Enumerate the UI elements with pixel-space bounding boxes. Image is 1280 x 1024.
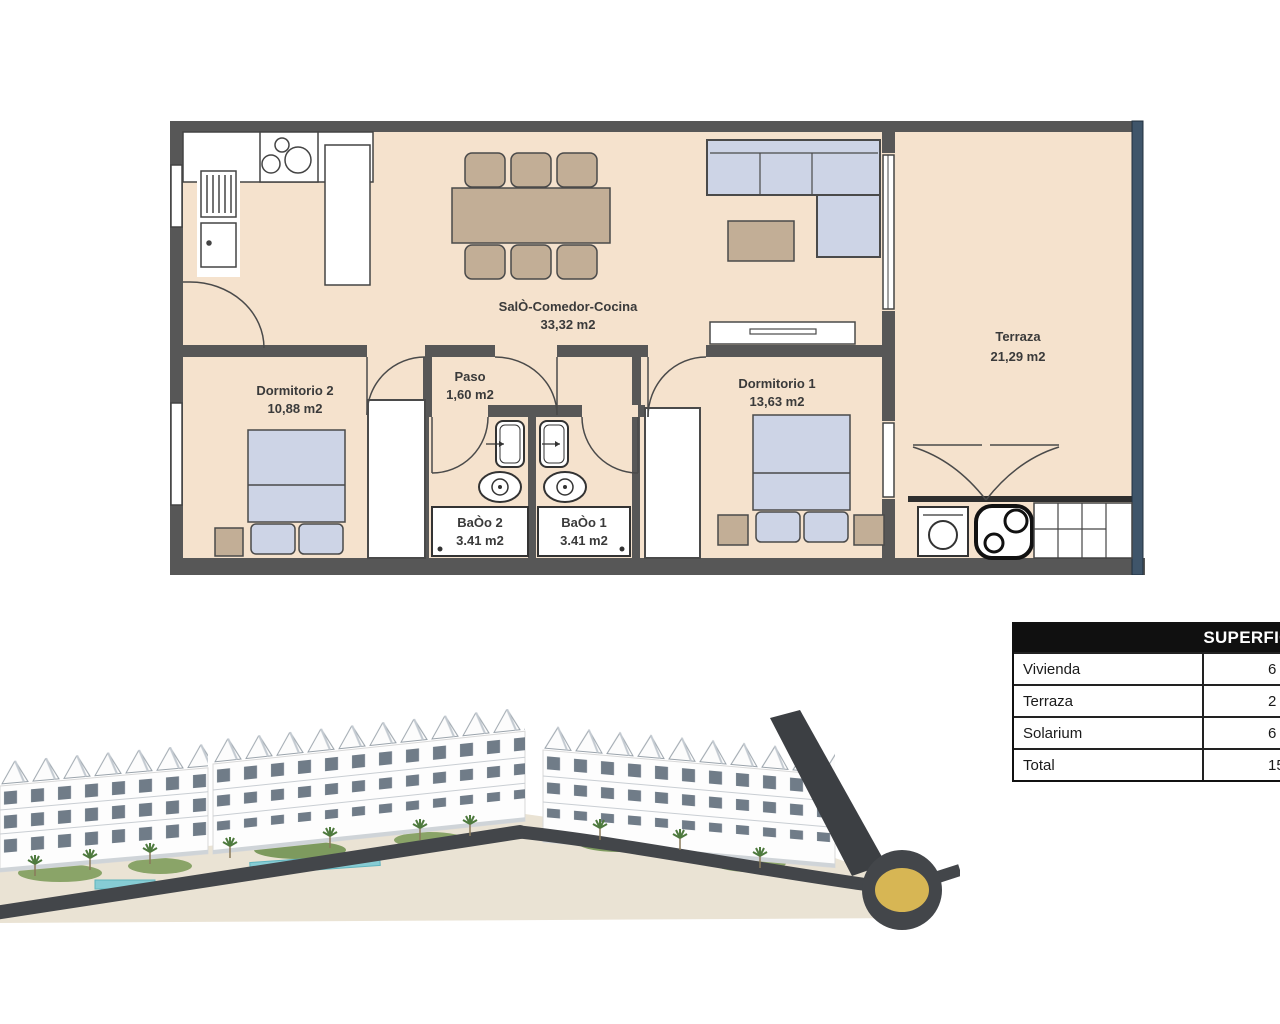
table-row: Terraza 2	[1014, 684, 1280, 716]
dorm2-window	[171, 403, 182, 505]
dorm1-pillow	[804, 512, 848, 542]
superficies-table-header: SUPERFICIES	[1014, 624, 1280, 652]
terrace-glass-rail	[1132, 121, 1143, 575]
roundabout	[862, 850, 960, 930]
superficies-table: SUPERFICIES Vivienda 6 Terraza 2 Solariu…	[1012, 622, 1280, 782]
development-render	[0, 618, 960, 948]
dining-chair	[557, 245, 597, 279]
dorm2-wardrobe	[368, 400, 425, 558]
tv-unit	[710, 322, 855, 344]
fridge-icon	[201, 223, 236, 267]
terrace-tiles	[1034, 503, 1132, 558]
dining-chair	[511, 153, 551, 187]
paso-label: Paso	[454, 369, 485, 384]
row-label: Vivienda	[1014, 654, 1202, 684]
dining-chair	[511, 245, 551, 279]
bano2-label: BaÒo 2	[457, 515, 503, 530]
dorm1-wardrobe	[645, 408, 700, 558]
dorm2-bed	[248, 430, 345, 522]
dorm1-nightstand	[854, 515, 884, 545]
row-value: 6	[1202, 718, 1280, 748]
kitchen-window	[171, 165, 182, 227]
salon-label: SalÒ-Comedor-Cocina	[499, 299, 638, 314]
dorm2-pillow	[251, 524, 295, 554]
coffee-table	[728, 221, 794, 261]
dining-chair	[465, 153, 505, 187]
floor-plan: SalÒ-Comedor-Cocina 33,32 m2 Paso 1,60 m…	[170, 115, 1145, 575]
sofa-chaise	[817, 195, 880, 257]
bano1-label: BaÒo 1	[561, 515, 607, 530]
hob-icon	[260, 132, 318, 182]
kitchen-island	[325, 145, 370, 285]
dormitorio2-label: Dormitorio 2	[256, 383, 333, 398]
dormitorio1-area: 13,63 m2	[750, 394, 805, 409]
dining-chair	[465, 245, 505, 279]
dormitorio1-furniture	[645, 408, 884, 558]
row-value: 2	[1202, 686, 1280, 716]
dorm1-window	[883, 423, 894, 497]
bano2-area: 3.41 m2	[456, 533, 504, 548]
apartment-building-left	[0, 744, 208, 872]
dorm1-bed	[753, 415, 850, 510]
row-label: Solarium	[1014, 718, 1202, 748]
table-row: Vivienda 6	[1014, 652, 1280, 684]
dorm1-nightstand	[718, 515, 748, 545]
terraza-area: 21,29 m2	[991, 349, 1046, 364]
paso-area: 1,60 m2	[446, 387, 494, 402]
table-row: Total 15	[1014, 748, 1280, 780]
salon-area: 33,32 m2	[541, 317, 596, 332]
row-label: Terraza	[1014, 686, 1202, 716]
laundry-area	[918, 503, 1132, 558]
row-value: 15	[1202, 750, 1280, 780]
dormitorio1-label: Dormitorio 1	[738, 376, 815, 391]
bano1-area: 3.41 m2	[560, 533, 608, 548]
dining-table	[452, 188, 610, 243]
dorm2-nightstand	[215, 528, 243, 556]
terraza-label: Terraza	[995, 329, 1041, 344]
sofa	[707, 140, 880, 195]
row-value: 6	[1202, 654, 1280, 684]
table-row: Solarium 6	[1014, 716, 1280, 748]
row-label: Total	[1014, 750, 1202, 780]
dorm1-pillow	[756, 512, 800, 542]
dining-chair	[557, 153, 597, 187]
dining-set	[452, 153, 610, 279]
dormitorio2-area: 10,88 m2	[268, 401, 323, 416]
dorm2-pillow	[299, 524, 343, 554]
